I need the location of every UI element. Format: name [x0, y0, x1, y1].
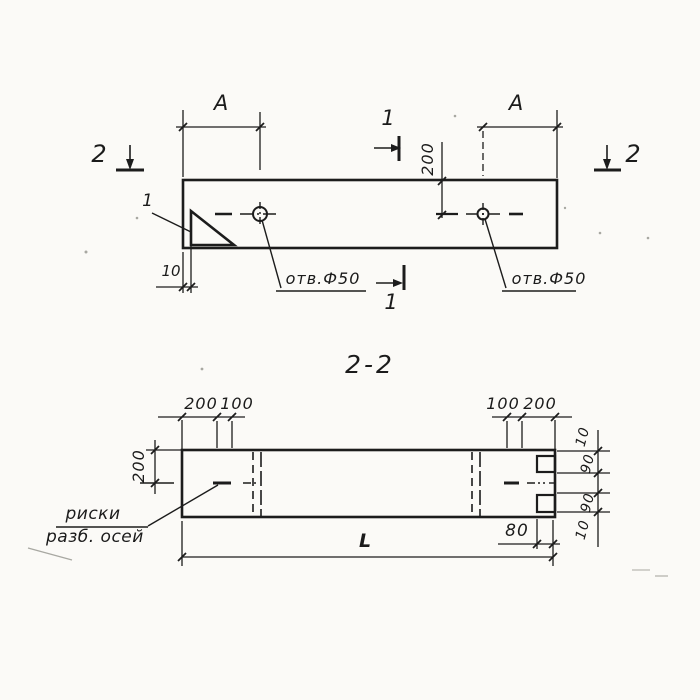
section-dim-length-label: L	[352, 532, 378, 551]
plan-dim-200-label: 200	[420, 139, 438, 179]
drawing-sheet: 2 2 1 1 А А 200 10 отв.Ф50 отв.Ф50 1 2-2…	[0, 0, 700, 700]
plan-corner-triangle	[191, 211, 234, 245]
section-dim-80-label: 80	[500, 523, 534, 540]
plan-detail-callout-label: 1	[140, 193, 156, 210]
plan-callout-leader	[152, 213, 191, 232]
plan-dim-a-left-label: А	[196, 93, 246, 114]
section-arrow-icon	[603, 159, 611, 170]
section-topleft-200-label: 200	[181, 396, 221, 412]
section-notch-bottom	[537, 495, 555, 512]
section-mark-1-bottom-label: 1	[381, 292, 401, 313]
plan-section-mark-2-right	[594, 145, 621, 170]
plan-hole-label-right: отв.Ф50	[503, 271, 595, 287]
section-height-200-label: 200	[131, 446, 149, 486]
section-mark-2-left-label: 2	[86, 142, 112, 166]
section-mark-2-right-label: 2	[620, 142, 646, 166]
plan-dim-a-right-label: А	[491, 93, 541, 114]
plan-dim-10-label: 10	[157, 264, 185, 279]
plan-section-mark-1-top	[374, 136, 401, 161]
section-title: 2-2	[335, 352, 405, 377]
section-topright-100-label: 100	[483, 396, 523, 412]
section-dims-top-right	[492, 413, 572, 449]
section-beam-outline	[182, 450, 555, 517]
section-arrow-icon	[393, 279, 403, 287]
plan-view	[116, 110, 621, 293]
plan-section-mark-2-left	[116, 145, 144, 170]
plan-dim-a-left	[176, 110, 266, 177]
section-notch-top	[537, 456, 555, 472]
plan-centerlines	[215, 202, 523, 227]
section-arrow-icon	[126, 159, 134, 170]
section-mark-1-top-label: 1	[378, 108, 398, 129]
section-topright-200-label: 200	[520, 396, 560, 412]
section-hidden-lines	[253, 452, 480, 516]
axes-note-line1: риски	[60, 506, 126, 523]
section-topleft-100-label: 100	[217, 396, 257, 412]
plan-dim-a-right	[477, 110, 563, 178]
plan-section-mark-1-bottom	[376, 265, 404, 290]
plan-hole-label-left: отв.Ф50	[277, 271, 369, 287]
axes-note-line2: разб. осей	[46, 529, 140, 546]
plan-beam-outline	[183, 180, 557, 248]
section-dims-top-left	[158, 413, 245, 449]
section-dim-height	[146, 440, 182, 494]
